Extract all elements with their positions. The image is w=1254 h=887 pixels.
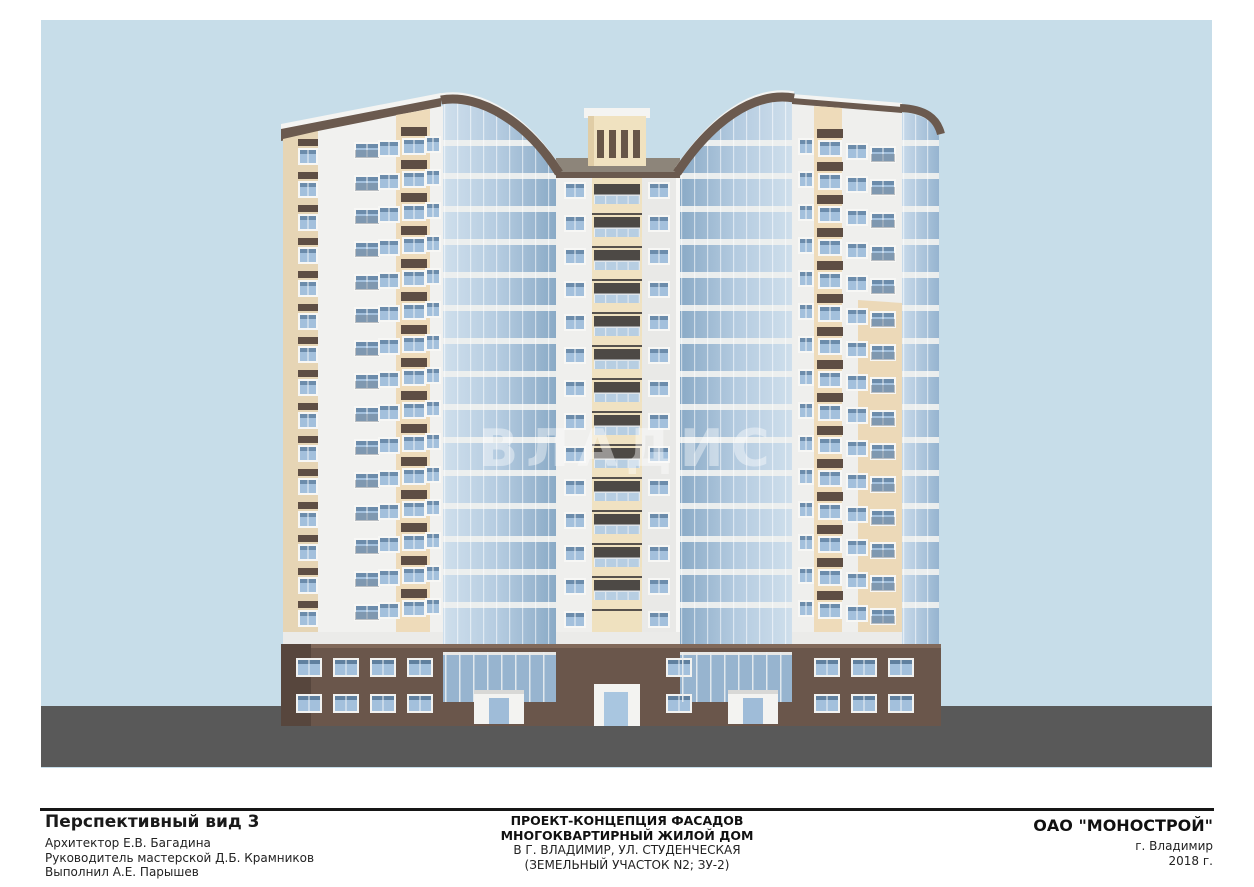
company-year: 2018 г. <box>1033 854 1213 869</box>
watermark-text: ВЛАДИС <box>478 419 777 479</box>
company-city: г. Владимир <box>1033 839 1213 854</box>
entrance-center <box>594 684 640 726</box>
right-curtain-wall <box>666 92 807 652</box>
apartment-building <box>281 92 954 726</box>
entrance-right <box>728 690 778 724</box>
entrance-left <box>474 690 524 724</box>
roof-crown <box>584 108 650 172</box>
company-name: ОАО "МОНОСТРОЙ" <box>1033 816 1213 835</box>
left-curtain-wall <box>429 92 571 652</box>
drawing-sheet: ВЛАДИС Перспективный вид 3 Архитектор Е.… <box>0 0 1254 887</box>
podium <box>281 644 941 726</box>
titleblock-company-info: ОАО "МОНОСТРОЙ" г. Владимир 2018 г. <box>1033 816 1213 868</box>
titleblock-divider <box>40 808 1214 811</box>
building-rendering: ВЛАДИС <box>0 0 1254 887</box>
